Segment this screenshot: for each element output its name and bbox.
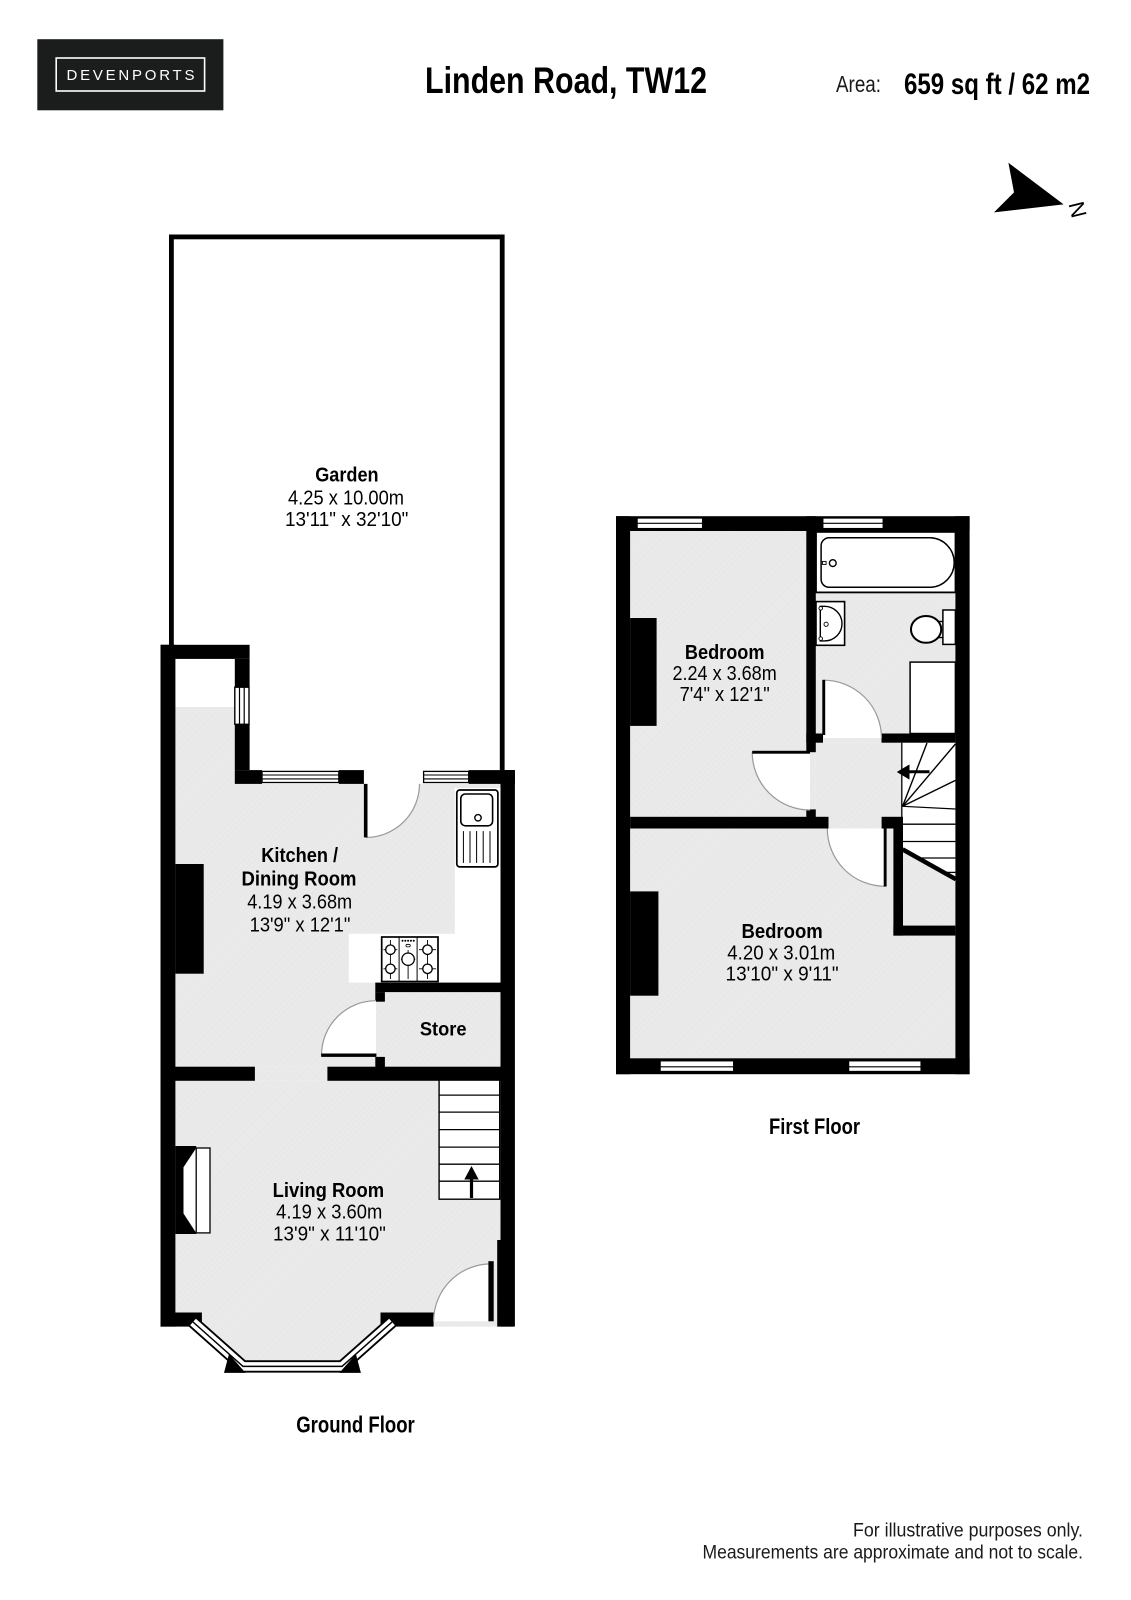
svg-text:Bedroom: Bedroom [741, 920, 822, 943]
svg-text:13'9" x 11'10": 13'9" x 11'10" [273, 1223, 386, 1245]
svg-text:Kitchen /: Kitchen / [261, 844, 338, 867]
svg-text:659 sq ft / 62 m2: 659 sq ft / 62 m2 [904, 68, 1090, 101]
svg-text:For illustrative purposes only: For illustrative purposes only. [853, 1520, 1083, 1542]
svg-text:13'9" x 12'1": 13'9" x 12'1" [250, 915, 351, 937]
svg-text:Dining Room: Dining Room [242, 867, 357, 890]
svg-text:Bedroom: Bedroom [685, 641, 765, 664]
svg-text:13'11" x 32'10": 13'11" x 32'10" [285, 509, 408, 531]
svg-text:Area:: Area: [836, 71, 881, 97]
svg-text:N: N [1063, 199, 1091, 220]
svg-text:First Floor: First Floor [769, 1114, 860, 1139]
svg-text:4.19 x 3.68m: 4.19 x 3.68m [247, 892, 352, 914]
svg-text:13'10" x 9'11": 13'10" x 9'11" [726, 964, 839, 986]
svg-text:Garden: Garden [315, 464, 378, 487]
svg-text:Measurements are approximate a: Measurements are approximate and not to … [703, 1542, 1084, 1564]
svg-text:7'4" x 12'1": 7'4" x 12'1" [680, 684, 770, 706]
svg-text:Ground Floor: Ground Floor [296, 1412, 415, 1438]
svg-text:Linden Road, TW12: Linden Road, TW12 [425, 60, 707, 101]
svg-text:2.24 x 3.68m: 2.24 x 3.68m [672, 663, 776, 685]
svg-text:4.20 x 3.01m: 4.20 x 3.01m [727, 943, 835, 965]
svg-text:4.25 x 10.00m: 4.25 x 10.00m [288, 488, 404, 510]
svg-text:4.19 x 3.60m: 4.19 x 3.60m [276, 1202, 382, 1224]
svg-text:Store: Store [420, 1020, 467, 1041]
svg-text:Living Room: Living Room [273, 1179, 385, 1202]
